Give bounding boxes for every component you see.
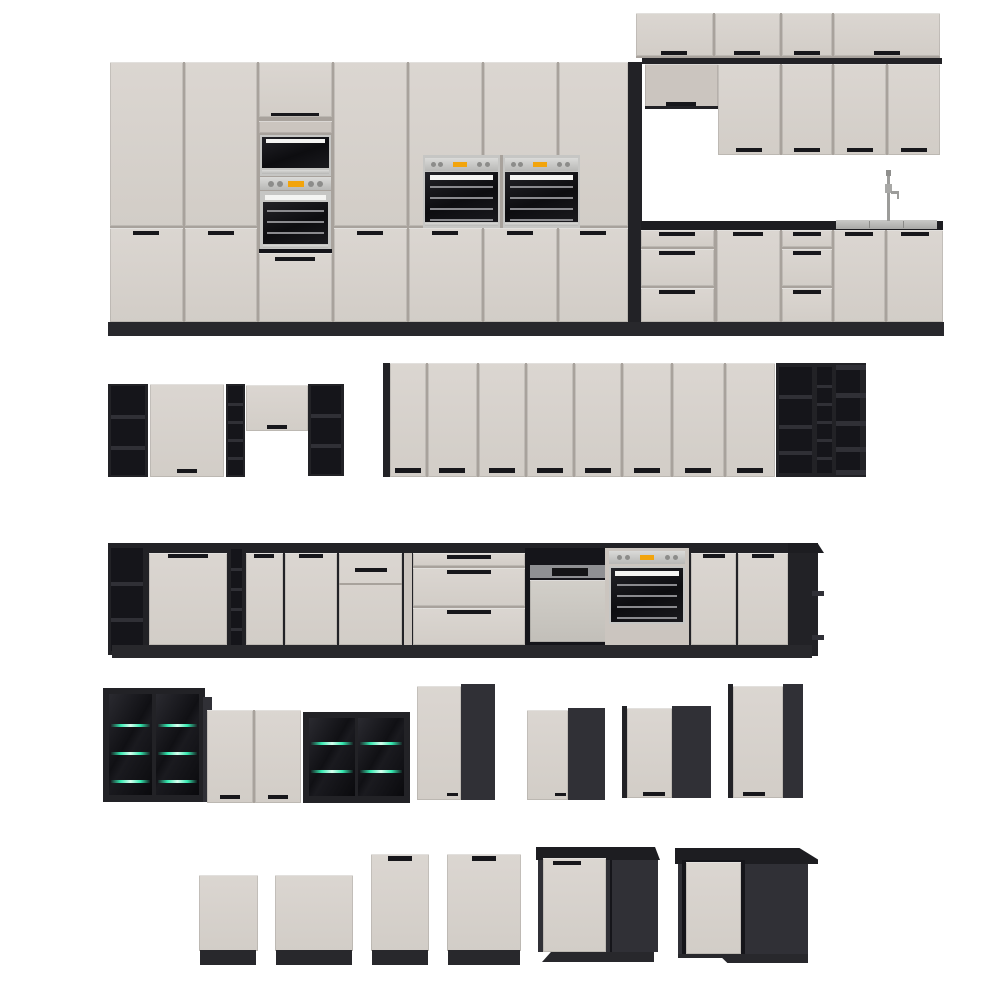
handle: [507, 231, 533, 235]
wall-door: [834, 13, 940, 56]
handle: [299, 554, 323, 558]
handle: [585, 468, 611, 473]
wall-door: [834, 64, 886, 155]
knob: [485, 162, 490, 167]
render-stage: [0, 0, 1000, 1000]
drawer-front: [782, 249, 832, 286]
shelf-fin: [836, 421, 866, 426]
glass-door: [156, 694, 199, 795]
glass-door: [358, 718, 404, 796]
corner-wall-unit: [622, 706, 711, 798]
plinth: [542, 952, 654, 962]
oven-control-panel: [505, 158, 578, 171]
wall-door: [207, 710, 253, 803]
tall-door: [110, 62, 183, 226]
wall-door: [782, 64, 832, 155]
plinth: [678, 954, 808, 963]
tall-door: [185, 62, 257, 226]
wall-cabinet-row-top: [636, 13, 940, 58]
tall-cabinet-run-2: [383, 363, 775, 477]
oven-display: [533, 162, 547, 167]
handle: [177, 469, 197, 473]
side-panel: [461, 684, 495, 800]
handle: [537, 468, 563, 473]
knob: [665, 555, 670, 560]
knob: [625, 555, 630, 560]
shelf: [111, 582, 143, 586]
panel-plinth: [276, 950, 352, 965]
glass-door: [309, 718, 355, 796]
oven-rack: [617, 595, 677, 597]
knob: [268, 181, 274, 187]
lower-door: [185, 228, 257, 322]
counter-tip: [788, 543, 824, 553]
dishwasher-display: [552, 568, 588, 576]
led-shelf: [311, 742, 353, 745]
plinth-row3: [112, 645, 812, 658]
side-panel: [672, 706, 711, 798]
handle: [685, 468, 711, 473]
shelf-interior: [779, 367, 812, 473]
shelf: [228, 439, 243, 442]
door-recess: [682, 860, 745, 956]
shelf: [779, 425, 812, 429]
knob: [431, 162, 436, 167]
shelf-interior: [111, 548, 143, 651]
base-door: [691, 553, 736, 645]
shelf-interior: [836, 367, 860, 473]
lower-door: [409, 228, 482, 322]
faucet-tip: [886, 170, 891, 176]
knob: [565, 162, 570, 167]
lower-door: [110, 228, 183, 322]
handle: [133, 231, 159, 235]
wall-door: [715, 13, 780, 56]
knob: [438, 162, 443, 167]
shelf: [231, 568, 242, 571]
tall-door: [390, 363, 426, 477]
corner-wall-unit: [527, 708, 605, 800]
wall-door: [627, 708, 672, 798]
shelf: [231, 628, 242, 631]
tower-drawer: [259, 253, 332, 322]
bridge-cabinet: [246, 385, 308, 431]
shelf: [228, 403, 243, 406]
shelf-interior: [311, 386, 341, 474]
drawer-front: [782, 230, 832, 247]
shelf: [231, 588, 242, 591]
drawer-door-unit: [339, 553, 402, 645]
open-shelf-tower: [776, 363, 866, 477]
corner-wall-cab-shadow: [645, 106, 718, 109]
wall-door: [417, 686, 461, 800]
double-oven-block: [423, 155, 580, 228]
handle: [355, 568, 387, 572]
oven-control-panel: [609, 551, 685, 564]
oven-rack: [510, 219, 573, 221]
shelf-fin: [812, 635, 824, 640]
front-panel: [371, 854, 429, 951]
oven-base: [425, 223, 498, 226]
shelf: [817, 385, 832, 388]
shelf: [111, 618, 143, 622]
lower-door: [484, 228, 557, 322]
knob: [277, 181, 283, 187]
built-in-oven: [423, 155, 500, 228]
tower-upper-door: [259, 62, 332, 117]
oven-base: [263, 245, 328, 248]
handle: [447, 610, 491, 614]
side-panel: [568, 708, 605, 800]
open-shelf-unit: [308, 384, 344, 476]
handle: [737, 468, 763, 473]
dishwasher-panel: [530, 580, 610, 642]
panel-plinth: [372, 950, 428, 965]
led-shelf: [111, 724, 150, 727]
base-cabinet-row: [641, 230, 943, 322]
wall-door: [636, 13, 713, 56]
shelf: [779, 451, 812, 455]
handle: [743, 792, 765, 796]
oven-rack: [267, 210, 324, 212]
handle: [793, 290, 821, 294]
microwave-handle-bar: [266, 139, 325, 143]
wall-cab-2door: [207, 710, 301, 803]
wall-door: [718, 64, 780, 155]
front-panel: [275, 875, 353, 951]
panel-plinth: [200, 950, 256, 965]
wall-door: [255, 710, 301, 803]
front-panel: [447, 854, 521, 951]
glass-door: [109, 694, 152, 795]
shelf-interior: [228, 386, 243, 475]
oven-frame: [609, 566, 685, 624]
handle: [659, 251, 695, 255]
shelf-fin: [836, 447, 866, 452]
handle: [267, 425, 287, 429]
led-shelf: [360, 770, 402, 773]
tall-door: [527, 363, 573, 477]
oven-rack: [617, 617, 677, 619]
drawer-front: [641, 288, 714, 322]
knob: [308, 181, 314, 187]
handle: [472, 856, 496, 861]
tower-oven: [260, 191, 331, 249]
oven-display: [640, 555, 654, 560]
handle: [703, 554, 725, 558]
sink: [836, 220, 937, 229]
sink-groove: [869, 221, 870, 228]
corner-wall-unit: [417, 684, 495, 800]
corner-panel: [628, 62, 642, 322]
oven-handle-bar: [265, 195, 326, 200]
led-shelf: [111, 752, 150, 755]
microwave-base: [262, 170, 329, 174]
front-panel: [199, 875, 258, 951]
knob: [477, 162, 482, 167]
drawer-front: [641, 249, 714, 286]
handle: [734, 51, 760, 55]
handle: [553, 861, 581, 865]
microwave-glass: [262, 137, 329, 168]
knob: [317, 181, 323, 187]
filler-panel: [404, 553, 412, 645]
plinth-row1: [108, 322, 944, 336]
oven-rack: [617, 584, 677, 586]
shelf: [111, 446, 145, 450]
shelf: [228, 457, 243, 460]
shelf: [817, 421, 832, 424]
wall-door: [782, 13, 832, 56]
handle: [357, 231, 383, 235]
handle: [268, 795, 288, 799]
oven-rack: [430, 186, 493, 188]
shelf: [228, 421, 243, 424]
drawer-front: [413, 553, 525, 566]
shelf-interior: [111, 386, 145, 475]
tall-door: [673, 363, 724, 477]
handle: [793, 251, 821, 255]
oven-rack: [510, 208, 573, 210]
oven-display: [453, 162, 467, 167]
base-door: [834, 230, 885, 322]
base-door: [717, 230, 780, 322]
oven-rack: [430, 208, 493, 210]
led-shelf: [360, 742, 402, 745]
tall-cabinet-run: [110, 62, 628, 322]
end-shelf-unit: [788, 543, 818, 656]
lower-door: [559, 228, 628, 322]
handle: [659, 232, 695, 236]
shelf-fin: [836, 365, 866, 370]
oven-base: [505, 223, 578, 226]
handle: [793, 232, 821, 236]
shelf-fin: [836, 470, 866, 475]
handle: [388, 856, 412, 861]
oven-glass: [263, 202, 328, 244]
wall-door: [888, 64, 940, 155]
side-panel: [783, 684, 803, 798]
handle: [845, 232, 873, 236]
drawer-seam: [339, 583, 402, 585]
tall-door: [334, 62, 407, 226]
led-shelf: [158, 724, 197, 727]
faucet-pole: [887, 174, 890, 221]
oven-rack: [267, 232, 324, 234]
tower-flap: [259, 121, 332, 133]
oven-rack: [617, 606, 677, 608]
tall-door: [726, 363, 775, 477]
lower-door: [334, 228, 407, 322]
oven-handle-bar: [430, 175, 493, 180]
led-shelf: [158, 752, 197, 755]
handle: [794, 148, 820, 152]
wall-cabinet-row: [718, 64, 940, 155]
drawer-front: [782, 288, 832, 322]
oven-rack: [510, 186, 573, 188]
oven-handle-bar: [510, 175, 573, 180]
oven-rack: [267, 221, 324, 223]
tall-door: [623, 363, 671, 477]
handle: [752, 554, 774, 558]
wall-door: [527, 710, 568, 800]
corner-wall-cab: [645, 64, 718, 108]
tall-door: [428, 363, 477, 477]
drawer-front: [413, 568, 525, 606]
knob: [557, 162, 562, 167]
open-shelf-column: [229, 547, 244, 653]
oven-handle-bar: [615, 571, 679, 576]
shelf: [817, 457, 832, 460]
sink-groove: [903, 221, 904, 228]
tall-door: [575, 363, 621, 477]
dishwasher: [525, 548, 615, 645]
handle: [489, 468, 515, 473]
handle: [447, 570, 491, 574]
open-shelf-unit: [108, 545, 146, 655]
shelf-fin: [836, 393, 866, 398]
handle: [208, 231, 234, 235]
microwave: [260, 135, 331, 176]
handle: [439, 468, 465, 473]
open-shelf-column: [226, 384, 245, 477]
shelf-interior: [231, 549, 242, 650]
oven-control-panel: [425, 158, 498, 171]
handle: [794, 51, 820, 55]
shelf: [817, 403, 832, 406]
shelf: [311, 444, 341, 448]
oven-display: [288, 181, 304, 187]
handle: [733, 232, 763, 236]
handle: [395, 468, 421, 473]
corner-base-cabinet-L: [675, 848, 818, 963]
base-door: [285, 553, 337, 645]
led-shelf: [111, 780, 150, 783]
oven-rack: [430, 219, 493, 221]
shelf: [111, 415, 145, 419]
knob: [673, 555, 678, 560]
handle: [659, 290, 695, 294]
built-in-oven: [503, 155, 580, 228]
drawer-front: [641, 230, 714, 247]
shelf: [231, 608, 242, 611]
handle: [901, 232, 929, 236]
handle: [447, 793, 458, 796]
glass-display-cabinet: [103, 688, 205, 802]
panel-plinth: [448, 950, 520, 965]
oven-glass: [505, 172, 578, 222]
handle: [634, 468, 660, 473]
glass-display-cabinet: [303, 712, 410, 803]
handle: [168, 554, 208, 558]
wall-door: [733, 686, 783, 798]
base-door: [738, 553, 788, 645]
handle: [555, 793, 566, 796]
handle: [847, 148, 873, 152]
handle: [275, 257, 315, 261]
oven-base-unit: [605, 548, 689, 645]
drawer-front: [413, 608, 525, 645]
handle: [254, 554, 274, 558]
oven-control-panel: [260, 177, 331, 190]
handle: [736, 148, 762, 152]
wall-door: [150, 384, 224, 477]
led-shelf: [158, 780, 197, 783]
carcass-seam: [610, 860, 612, 952]
shelf: [817, 439, 832, 442]
open-shelf-unit: [108, 384, 148, 477]
handle: [432, 231, 458, 235]
handle: [271, 113, 319, 116]
base-door: [543, 858, 606, 952]
faucet-spout-drop: [897, 194, 899, 199]
shelf: [311, 414, 341, 418]
shelf: [779, 395, 812, 399]
corner-base-cabinet: [536, 847, 660, 962]
handle: [874, 51, 900, 55]
handle: [447, 555, 491, 559]
knob: [617, 555, 622, 560]
side-panel: [383, 363, 390, 477]
base-door: [149, 553, 227, 645]
handle: [901, 148, 927, 152]
led-shelf: [311, 770, 353, 773]
shelf-fin: [812, 591, 824, 596]
faucet: [884, 170, 902, 221]
handle: [220, 795, 240, 799]
oven-rack: [430, 197, 493, 199]
tall-door: [479, 363, 525, 477]
base-door: [246, 553, 283, 645]
knob: [511, 162, 516, 167]
base-door: [686, 862, 741, 954]
knob: [518, 162, 523, 167]
handle: [661, 51, 687, 55]
handle: [643, 792, 665, 796]
oven-rack: [510, 197, 573, 199]
drawer-stack: [413, 553, 525, 645]
corner-wall-unit: [728, 684, 803, 798]
oven-glass: [611, 568, 683, 622]
handle: [580, 231, 606, 235]
oven-glass: [425, 172, 498, 222]
base-door: [887, 230, 943, 322]
